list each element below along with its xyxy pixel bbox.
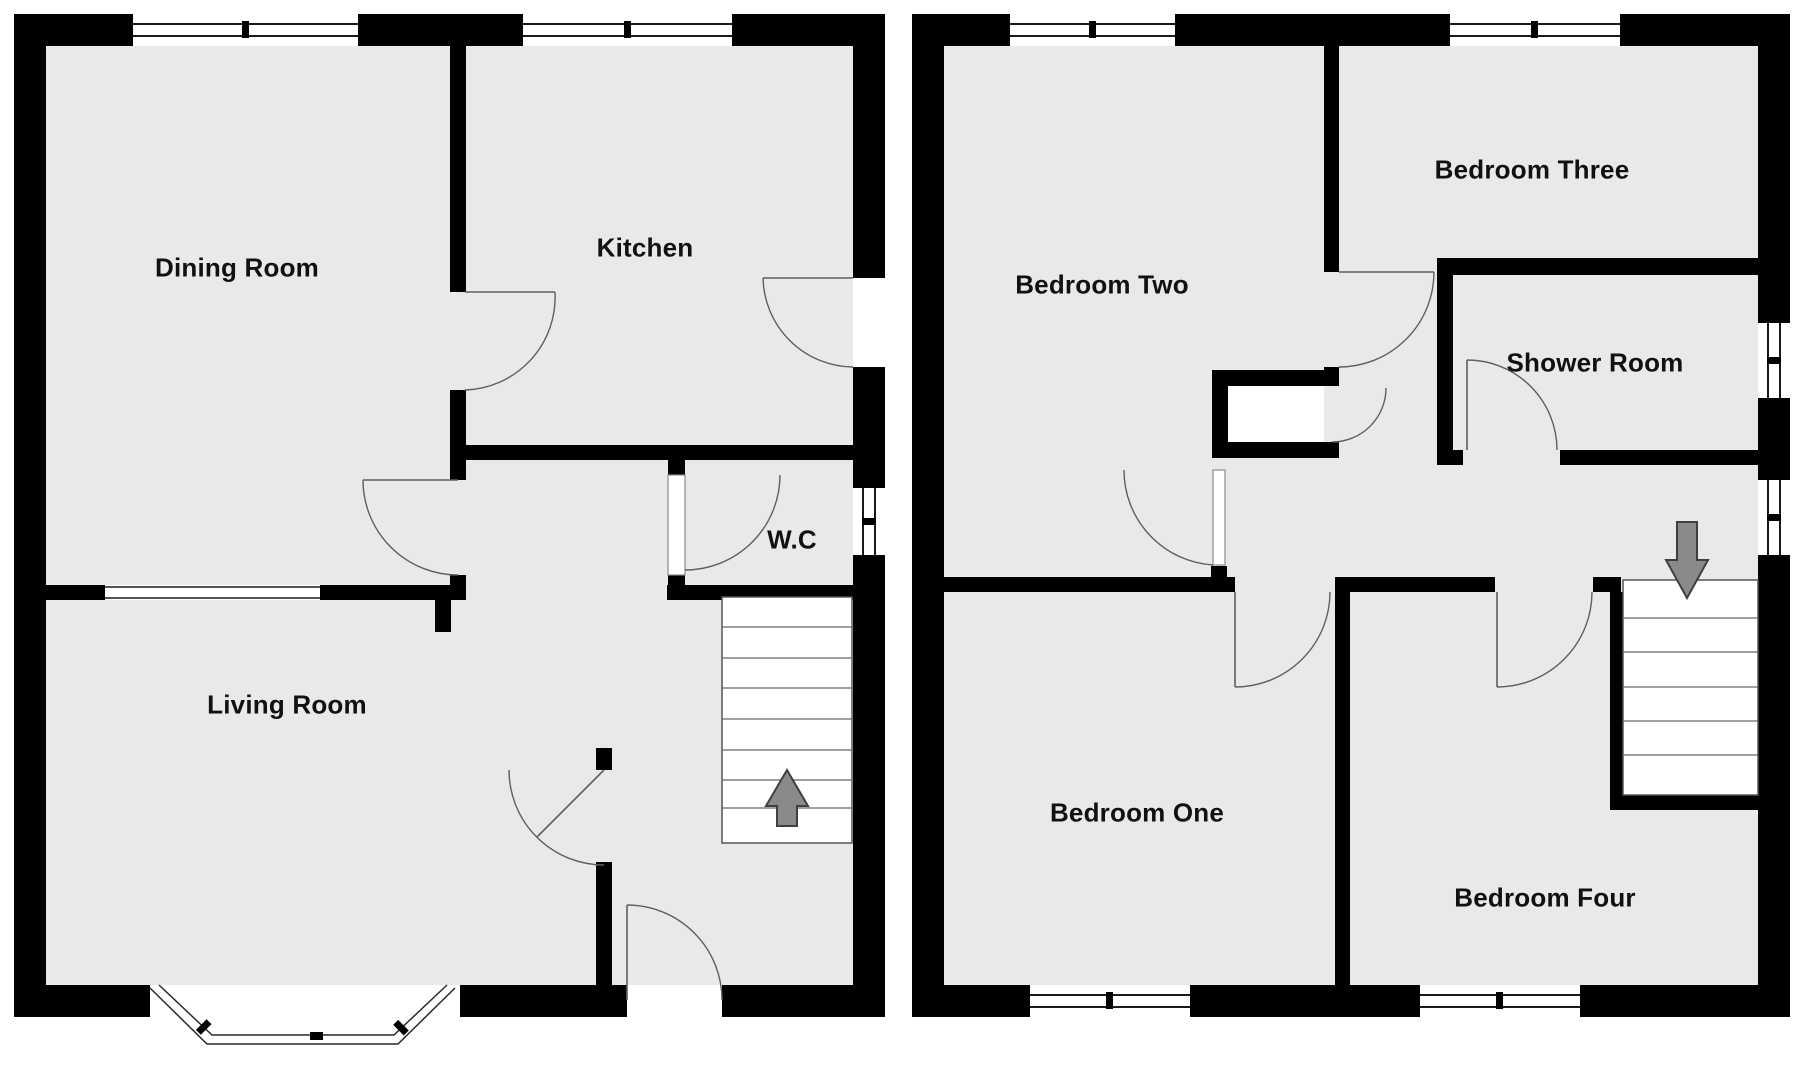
wc-label: W.C xyxy=(767,525,817,556)
dining-room-label: Dining Room xyxy=(155,253,319,284)
bedroom-four-label: Bedroom Four xyxy=(1454,883,1636,914)
landing-window xyxy=(1758,480,1790,555)
first-floor-plan xyxy=(912,14,1790,1017)
bedroom-three-label: Bedroom Three xyxy=(1435,155,1630,186)
dining-window xyxy=(133,14,358,46)
cupboard-interior xyxy=(1228,386,1324,442)
living-room-label: Living Room xyxy=(207,690,367,721)
bedroom-two-label: Bedroom Two xyxy=(1015,270,1189,301)
bedroom-four-window xyxy=(1420,985,1580,1017)
bedroom-one-label: Bedroom One xyxy=(1050,798,1224,829)
bedroom-two-window xyxy=(1010,14,1175,46)
wc-window xyxy=(853,488,885,555)
stairs-up xyxy=(722,597,852,843)
kitchen-window xyxy=(523,14,732,46)
dining-living-opening xyxy=(105,585,320,600)
floorplan-canvas: Dining Room Kitchen W.C Living Room Bedr… xyxy=(0,0,1804,1071)
bay-window xyxy=(150,985,455,1044)
bedroom-one-window xyxy=(1030,985,1190,1017)
shower-room-window xyxy=(1758,323,1790,398)
bedroom-three-window xyxy=(1450,14,1620,46)
ground-floor-plan xyxy=(14,14,885,1044)
first-floor-area xyxy=(944,46,1758,985)
kitchen-label: Kitchen xyxy=(597,233,694,264)
ground-floor-area xyxy=(46,46,853,985)
shower-room-label: Shower Room xyxy=(1507,348,1684,379)
